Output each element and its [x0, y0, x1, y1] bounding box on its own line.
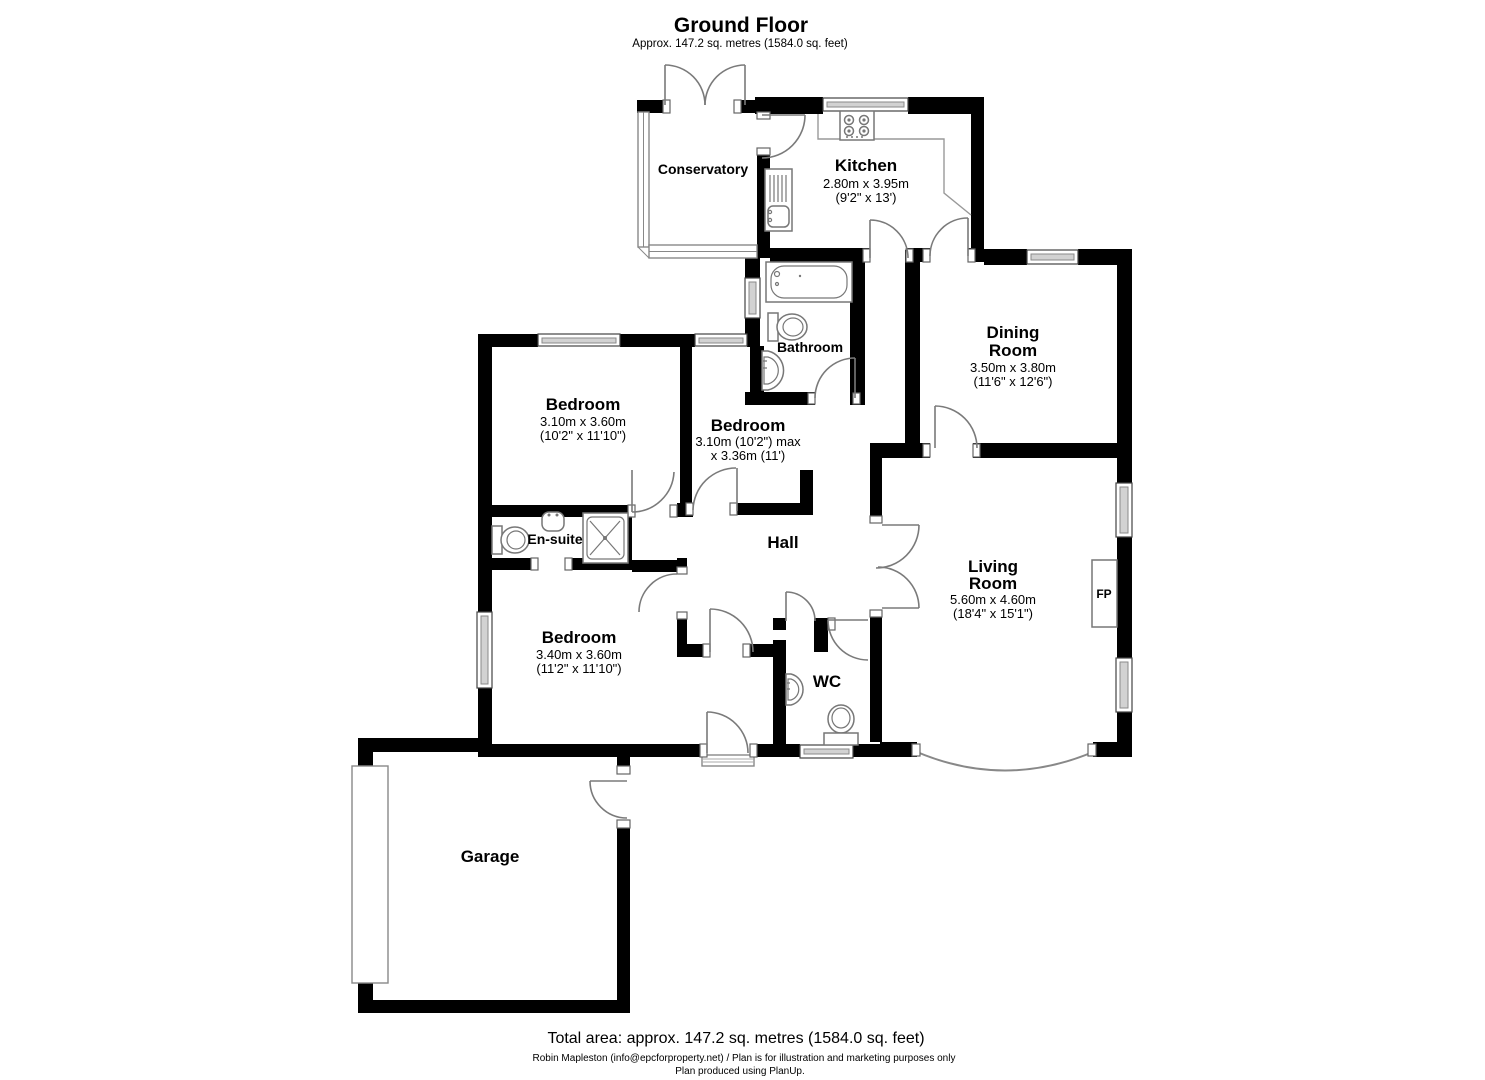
room-label-dining-1: Dining — [987, 323, 1040, 342]
conservatory-french-doors — [665, 65, 745, 105]
room-size-living-metric: 5.60m x 4.60m — [950, 592, 1036, 607]
footer-produced: Plan produced using PlanUp. — [675, 1066, 805, 1077]
living-dining-door — [935, 406, 977, 448]
page-subtitle: Approx. 147.2 sq. metres (1584.0 sq. fee… — [632, 38, 848, 50]
room-labels: Ground Floor Approx. 147.2 sq. metres (1… — [461, 14, 1056, 866]
front-door-threshold — [702, 755, 754, 766]
room-label-ensuite: En-suite — [527, 531, 582, 547]
floor-plan-drawing: FP Ground Floor Approx. 147.2 sq. metres… — [0, 0, 1485, 1080]
room-size-living-imperial: (18'4" x 15'1") — [953, 606, 1033, 621]
bath-icon — [766, 262, 852, 302]
kitchen-dining-door — [930, 218, 968, 256]
wc-sink-icon — [786, 674, 803, 705]
living-window-lower — [1116, 658, 1132, 712]
footer: Total area: approx. 147.2 sq. metres (15… — [533, 1030, 956, 1077]
conservatory-glazing — [638, 112, 757, 258]
room-label-kitchen: Kitchen — [835, 156, 897, 175]
room-label-bathroom: Bathroom — [777, 339, 843, 355]
room-label-garage: Garage — [461, 847, 520, 866]
room-size-kitchen-imperial: (9'2" x 13') — [836, 190, 897, 205]
front-door — [707, 712, 748, 753]
room-size-bedroom-middle-1: 3.10m (10'2") max — [695, 434, 801, 449]
garage-side-door — [590, 781, 627, 818]
room-size-dining-metric: 3.50m x 3.80m — [970, 360, 1056, 375]
bathroom-toilet-icon — [768, 313, 807, 341]
room-label-bedroom-front: Bedroom — [542, 628, 617, 647]
kitchen-hall-door — [870, 220, 908, 258]
bathroom-window — [745, 278, 760, 318]
room-size-bedroom-middle-2: x 3.36m (11') — [711, 448, 786, 463]
bedroom-rear-window — [538, 334, 620, 346]
wc-door — [786, 592, 815, 621]
room-size-dining-imperial: (11'6" x 12'6") — [974, 374, 1053, 389]
dining-window — [1027, 250, 1078, 264]
bathroom-door — [815, 358, 855, 398]
room-label-bedroom-rear: Bedroom — [546, 395, 621, 414]
bedroom-front-window — [477, 612, 492, 688]
living-window-upper — [1116, 483, 1132, 537]
garage-door — [352, 766, 388, 983]
footer-total-area: Total area: approx. 147.2 sq. metres (15… — [547, 1030, 924, 1047]
bedroom-front-door — [639, 574, 677, 612]
door-jambs — [531, 100, 980, 828]
room-size-bedroom-front-imperial: (11'2" x 11'10") — [536, 661, 621, 676]
bathroom-sink-icon — [762, 351, 784, 390]
hob-icon — [840, 111, 874, 140]
walls — [358, 97, 1132, 1013]
bedroom-rear-door — [632, 470, 674, 512]
fireplace-label: FP — [1096, 587, 1111, 601]
room-label-conservatory: Conservatory — [658, 161, 748, 177]
living-double-doors — [876, 525, 919, 608]
room-size-kitchen-metric: 2.80m x 3.95m — [823, 176, 909, 191]
wc-toilet-icon — [824, 705, 858, 745]
room-label-wc: WC — [813, 672, 841, 691]
bedroom-middle-window — [695, 334, 747, 346]
room-label-dining-2: Room — [989, 341, 1037, 360]
page-title: Ground Floor — [674, 14, 808, 37]
ensuite-toilet-icon — [492, 526, 529, 554]
room-size-bedroom-rear-metric: 3.10m x 3.60m — [540, 414, 626, 429]
room-size-bedroom-rear-imperial: (10'2" x 11'10") — [540, 428, 626, 443]
fireplace: FP — [1092, 560, 1117, 627]
footer-credit: Robin Mapleston (info@epcforproperty.net… — [533, 1053, 956, 1064]
kitchen-window — [823, 98, 908, 111]
shower-icon — [583, 513, 628, 563]
room-size-bedroom-front-metric: 3.40m x 3.60m — [536, 647, 622, 662]
room-label-living-2: Room — [969, 574, 1017, 593]
bay-window — [912, 744, 1096, 771]
ensuite-sink-icon — [542, 512, 564, 531]
room-label-bedroom-middle: Bedroom — [711, 416, 786, 435]
room-label-hall: Hall — [767, 533, 798, 552]
floor-plan-page: FP Ground Floor Approx. 147.2 sq. metres… — [0, 0, 1485, 1080]
wc-window — [800, 745, 853, 758]
